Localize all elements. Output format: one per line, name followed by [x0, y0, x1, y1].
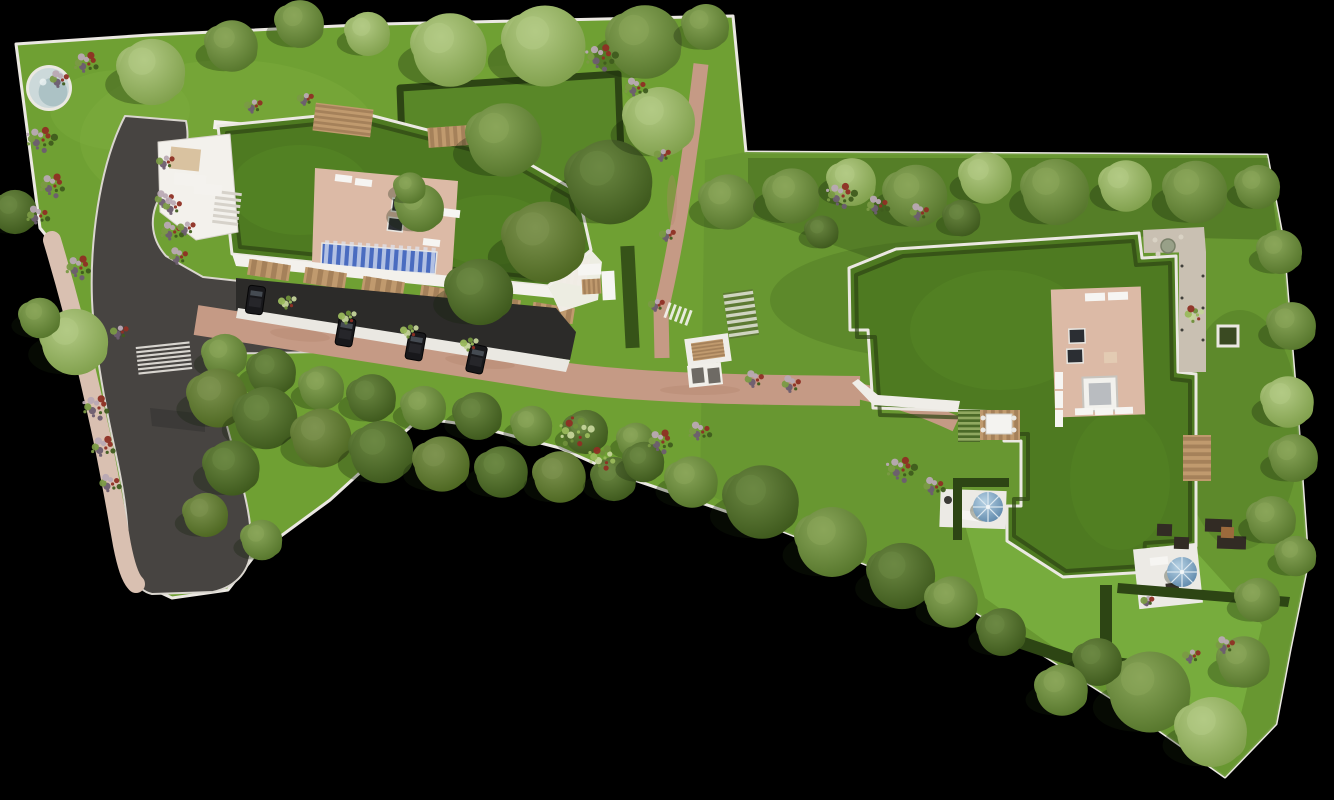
garden-hedge	[953, 478, 962, 540]
chair	[1012, 416, 1017, 421]
site-plan-canvas	[0, 0, 1334, 800]
skylight	[1067, 349, 1083, 364]
terrace-light	[1202, 339, 1205, 342]
green-trellis	[723, 289, 759, 339]
outdoor-sofa	[601, 271, 615, 301]
green-trellis	[958, 410, 980, 442]
round-table	[1161, 239, 1175, 253]
terrace-light	[1181, 297, 1184, 300]
side-table	[944, 496, 952, 504]
chair	[981, 428, 986, 433]
southeast-deck	[1183, 435, 1211, 481]
chair	[981, 416, 986, 421]
chair	[1179, 235, 1184, 240]
sun-lounger	[1055, 391, 1063, 408]
terrace-light	[1202, 275, 1205, 278]
parked-car	[245, 285, 266, 315]
window-well	[707, 367, 721, 383]
square-planter	[1218, 326, 1238, 346]
terrace-light	[1181, 329, 1184, 332]
sun-lounger	[1108, 292, 1128, 301]
fire-table	[1221, 527, 1234, 538]
sun-lounger	[1115, 407, 1133, 415]
chair	[1153, 238, 1158, 243]
skylight	[1069, 329, 1085, 344]
dining-table	[986, 414, 1012, 434]
wood-coffee-table	[582, 279, 602, 295]
sun-lounger	[1085, 293, 1105, 302]
roof-highlight	[1070, 410, 1170, 550]
outdoor-chair	[1174, 537, 1189, 550]
chair	[1012, 428, 1017, 433]
pond-fountain	[26, 65, 72, 111]
sun-lounger	[1075, 408, 1093, 416]
side-table	[1104, 352, 1117, 363]
sun-lounger	[1055, 410, 1063, 427]
sun-lounger	[1055, 372, 1063, 389]
window-well	[691, 367, 705, 383]
chair	[1156, 252, 1161, 257]
terrace-light	[1202, 307, 1205, 310]
path-mottle	[667, 175, 677, 225]
large-skylight-glass	[1089, 383, 1112, 406]
sun-lounger	[1095, 408, 1113, 416]
outdoor-chair	[1157, 524, 1172, 537]
outdoor-sofa	[578, 263, 602, 275]
terrace-light	[1181, 265, 1184, 268]
site-plan-rendering	[0, 0, 1334, 800]
